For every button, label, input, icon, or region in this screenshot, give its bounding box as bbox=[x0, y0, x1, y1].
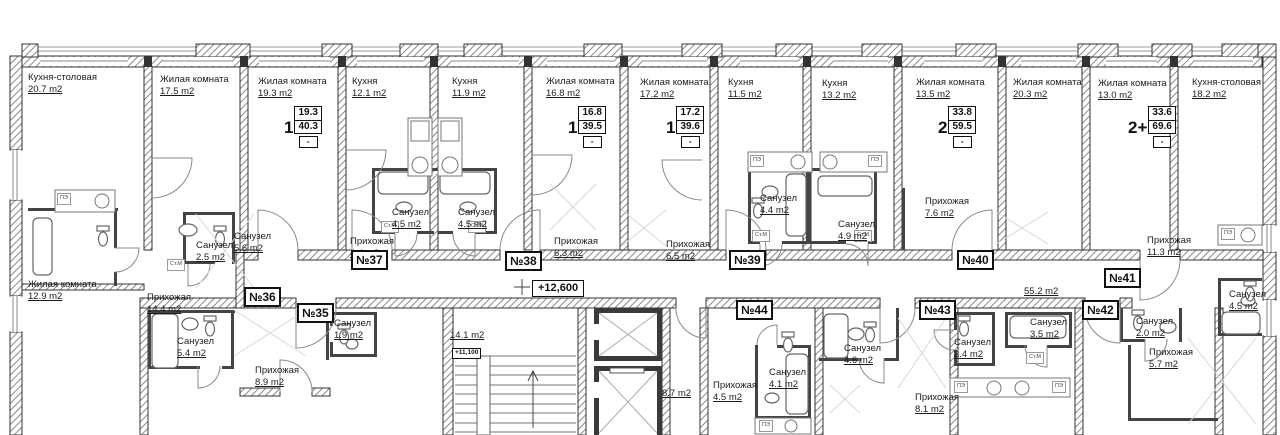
corridor-area-label: 55.2 m2 bbox=[1024, 286, 1058, 298]
room-label: Прихожая6.5 m2 bbox=[666, 239, 710, 264]
floor-plan: Кухня-столовая20.7 m2 Жилая комната17.5 … bbox=[0, 0, 1280, 435]
stair-level-mark: +11,100 bbox=[452, 348, 481, 359]
apartment-number: №41 bbox=[1104, 268, 1141, 288]
room-label: Жилая комната12.9 m2 bbox=[28, 279, 97, 304]
stove-tag: ПЭ bbox=[1052, 381, 1066, 393]
room-label: Жилая комната20.3 m2 bbox=[1013, 77, 1082, 102]
apartment-number: №38 bbox=[505, 251, 542, 271]
room-label: Жилая комната17.5 m2 bbox=[160, 74, 229, 99]
stove-tag: ПЭ bbox=[750, 155, 764, 167]
room-label: Санузел2.0 m2 bbox=[1136, 316, 1173, 341]
room-label: Кухня11.5 m2 bbox=[728, 77, 762, 102]
room-label: Жилая комната19.3 m2 bbox=[258, 76, 327, 101]
level-mark: +12,600 bbox=[532, 280, 584, 297]
room-label: Прихожая5.7 m2 bbox=[1149, 347, 1193, 372]
room-label: Санузел4.9 m2 bbox=[838, 219, 875, 244]
room-label: Кухня12.1 m2 bbox=[352, 76, 386, 101]
room-label: Жилая комната13.5 m2 bbox=[916, 77, 985, 102]
apartment-stamp: 1 19.340.3- bbox=[284, 106, 322, 148]
room-label: Санузел5.6 m2 bbox=[234, 231, 271, 256]
stairs bbox=[455, 356, 576, 435]
stove-tag: ПЭ bbox=[57, 193, 71, 205]
room-label: Кухня11.9 m2 bbox=[452, 76, 486, 101]
elevators bbox=[594, 308, 662, 435]
washer-tag: Ст.М bbox=[752, 230, 770, 242]
room-label: Санузел5.4 m2 bbox=[177, 336, 214, 361]
room-label: Санузел4.4 m2 bbox=[760, 193, 797, 218]
room-label: Санузел4.1 m2 bbox=[769, 367, 806, 392]
room-label: Прихожая7.6 m2 bbox=[925, 196, 969, 221]
plan-drawing bbox=[0, 0, 1280, 435]
room-label: Прихожая8.9 m2 bbox=[255, 365, 299, 390]
apartment-number: №40 bbox=[957, 250, 994, 270]
stair-area-label: 14.1 m2 bbox=[450, 330, 484, 342]
room-label: Санузел1.9 m2 bbox=[334, 318, 371, 343]
washer-tag: Ст.М bbox=[167, 259, 185, 271]
room-label: Прихожая14.4 m2 bbox=[147, 292, 191, 317]
apartment-number: №35 bbox=[297, 303, 334, 323]
apartment-number: №39 bbox=[729, 250, 766, 270]
room-label: Прихожая4.5 m2 bbox=[713, 380, 757, 405]
apartment-stamp: 1 16.839.5- bbox=[568, 106, 606, 148]
room-label: Прихожая11.3 m2 bbox=[1147, 235, 1191, 260]
apartment-stamp: 2 33.859.5- bbox=[938, 106, 976, 148]
room-label: Санузел4.5 m2 bbox=[392, 207, 429, 232]
apartment-number: №37 bbox=[351, 250, 388, 270]
room-label: Жилая комната17.2 m2 bbox=[640, 77, 709, 102]
level-crosshair bbox=[514, 279, 530, 295]
stove-tag: ПЭ bbox=[759, 420, 773, 432]
room-area-label: 8.7 m2 bbox=[662, 388, 691, 400]
apartment-number: №44 bbox=[736, 300, 773, 320]
stove-tag: ПЭ bbox=[954, 381, 968, 393]
room-label: Кухня-столовая20.7 m2 bbox=[28, 72, 97, 97]
room-label: Санузел3.5 m2 bbox=[1030, 317, 1067, 342]
stove-tag: ПЭ bbox=[868, 155, 882, 167]
room-label: Кухня13.2 m2 bbox=[822, 78, 856, 103]
apartment-number: №42 bbox=[1082, 300, 1119, 320]
room-label: Кухня-столовая18.2 m2 bbox=[1192, 77, 1261, 102]
room-label: Прихожая6.3 m2 bbox=[554, 236, 598, 261]
washer-tag: Ст.М bbox=[1026, 352, 1044, 364]
room-label: Прихожая8.1 m2 bbox=[915, 392, 959, 417]
apartment-stamp: 2+ 33.669.6- bbox=[1128, 106, 1176, 148]
room-label: Санузел4.5 m2 bbox=[1229, 289, 1266, 314]
room-label: Санузел4.5 m2 bbox=[458, 207, 495, 232]
room-label: Жилая комната16.8 m2 bbox=[546, 76, 615, 101]
room-label: Санузел2.4 m2 bbox=[954, 337, 991, 362]
stove-tag: ПЭ bbox=[1221, 228, 1235, 240]
room-label: Санузел4.6 m2 bbox=[844, 343, 881, 368]
apartment-number: №36 bbox=[244, 287, 281, 307]
apartment-number: №43 bbox=[919, 300, 956, 320]
room-label: Санузел2.5 m2 bbox=[196, 240, 233, 265]
apartment-stamp: 1 17.239.6- bbox=[666, 106, 704, 148]
doors bbox=[115, 150, 1180, 392]
room-label: Жилая комната13.0 m2 bbox=[1098, 78, 1167, 103]
